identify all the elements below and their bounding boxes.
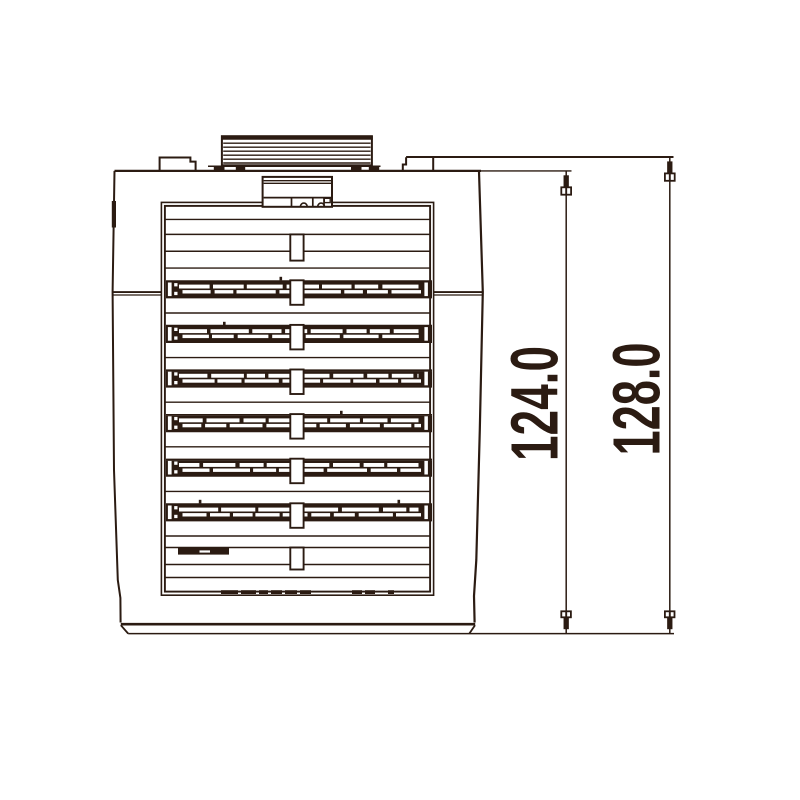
svg-text:128.0: 128.0 xyxy=(600,343,675,456)
svg-text:124.0: 124.0 xyxy=(498,346,573,461)
